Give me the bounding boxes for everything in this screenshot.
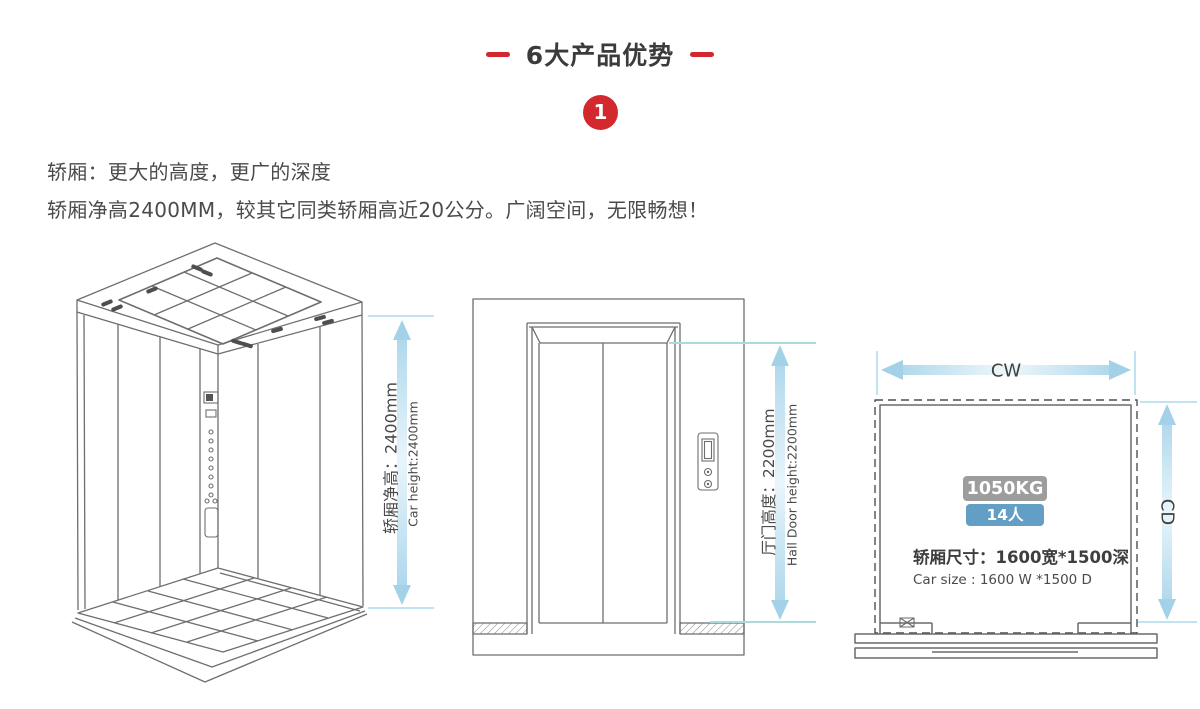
door-height-label-en: Hall Door height:2200mm	[785, 404, 800, 566]
car-height-label-en: Car height:2400mm	[406, 401, 421, 527]
intro-line-2: 轿厢净高2400MM，较其它同类轿厢高近20公分。广阔空间，无限畅想！	[47, 194, 708, 223]
page-title: 6大产品优势	[526, 36, 674, 72]
arrow-left-icon	[881, 360, 903, 380]
step-number-badge: 1	[583, 95, 618, 130]
arrow-down-icon	[393, 585, 411, 605]
door-height-label-cn: 厅门高度：2200mm	[760, 408, 778, 555]
hall-call-panel	[698, 433, 718, 490]
car-operating-panel	[204, 392, 218, 537]
title-dash-right-icon	[690, 52, 714, 57]
car-plan-view-diagram: CW CD 1050KG 14人 轿厢尺寸：1600宽*1500深 Car si…	[845, 345, 1200, 675]
door-line-art	[473, 299, 744, 655]
load-badge-label: 1050KG	[967, 479, 1044, 499]
arrow-right-icon	[1109, 360, 1131, 380]
intro-line-1: 轿厢：更大的高度，更广的深度	[47, 156, 331, 185]
car-width-dimension: CW	[877, 351, 1135, 395]
section-title-row: 6大产品优势	[0, 36, 1200, 72]
arrow-up-icon	[393, 320, 411, 340]
car-height-dimension: 轿厢净高：2400mm Car height:2400mm	[368, 316, 434, 608]
car-depth-dimension: CD	[1138, 402, 1197, 622]
title-dash-left-icon	[486, 52, 510, 57]
product-advantages-section: 6大产品优势 1 轿厢：更大的高度，更广的深度 轿厢净高2400MM，较其它同类…	[0, 0, 1200, 709]
persons-badge-label: 14人	[986, 506, 1024, 524]
car-size-label-en: Car size : 1600 W *1500 D	[913, 572, 1092, 588]
hall-door-height-dimension: 厅门高度：2200mm Hall Door height:2200mm	[669, 343, 816, 622]
arrow-up-icon	[1158, 404, 1176, 425]
capacity-badges: 1050KG 14人	[963, 476, 1047, 526]
arrow-down-icon	[1158, 599, 1176, 620]
car-depth-label: CD	[1157, 499, 1178, 525]
arrow-down-icon	[771, 600, 789, 620]
car-width-label: CW	[991, 361, 1022, 382]
arrow-up-icon	[771, 345, 789, 366]
elevator-car-isometric-diagram: 轿厢净高：2400mm Car height:2400mm	[60, 240, 450, 705]
car-size-label-cn: 轿厢尺寸：1600宽*1500深	[913, 547, 1129, 567]
hall-door-front-diagram: 厅门高度：2200mm Hall Door height:2200mm	[470, 290, 820, 662]
car-height-label-cn: 轿厢净高：2400mm	[382, 382, 401, 534]
plan-line-art	[855, 400, 1157, 658]
